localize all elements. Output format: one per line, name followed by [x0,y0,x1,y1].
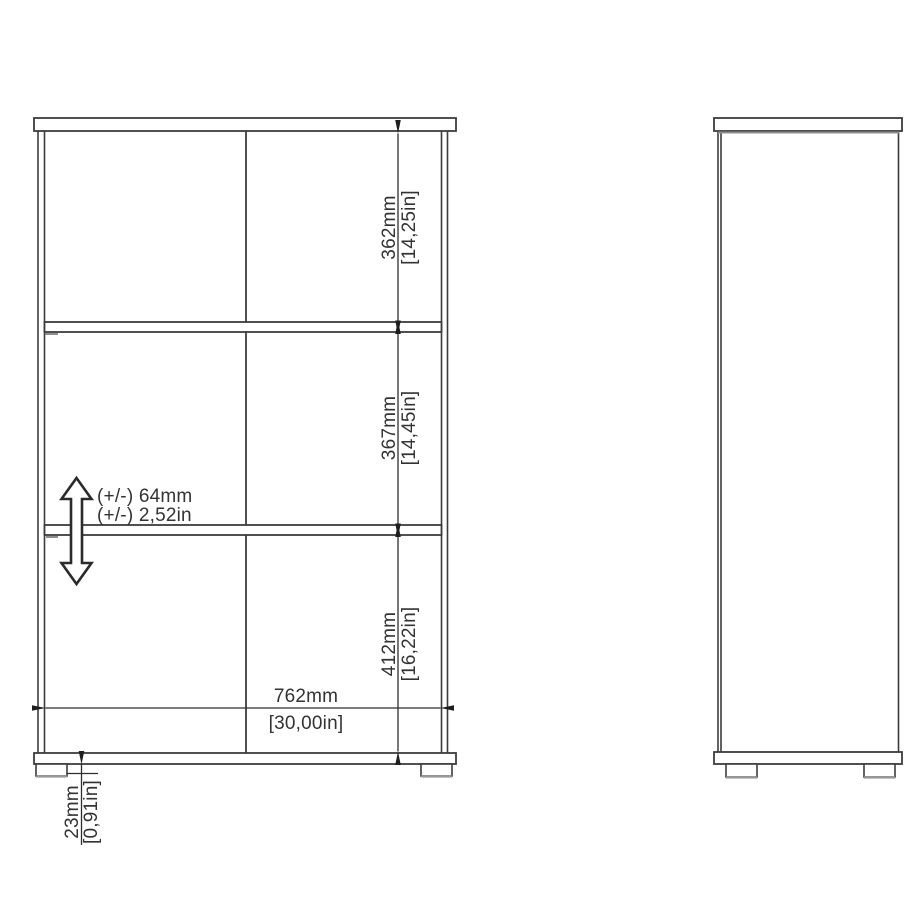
front-bottom-panel [34,753,456,764]
front-top-panel [34,118,456,131]
front-fixed-shelf [45,322,442,332]
front-adjustable-shelf [45,525,442,535]
side-bottom-panel [714,752,902,764]
front-dimensions: 362mm [14,25in] 367mm [14,45in] 412mm [1… [46,134,441,846]
dim-label-inner-width-in: [30,00in] [269,713,344,734]
bookcase-dimension-drawing: 362mm [14,25in] 367mm [14,45in] 412mm [1… [0,0,907,907]
side-front-foot [726,764,757,777]
dim-label-compartment-1-in: [14,25in] [399,190,420,265]
side-back-foot [864,764,895,777]
dim-label-compartment-2-mm: 367mm [379,396,400,460]
dim-label-compartment-1-mm: 362mm [379,195,400,259]
side-view [714,118,902,778]
front-left-foot [36,764,67,776]
shelf-adjust-label-in: (+/-) 2,52in [97,505,192,526]
front-right-foot [421,764,452,776]
dim-label-compartment-3-in: [16,22in] [399,607,420,682]
technical-drawing-page: 362mm [14,25in] 367mm [14,45in] 412mm [1… [0,0,907,907]
side-top-panel [714,118,902,131]
dim-label-compartment-3-mm: 412mm [379,612,400,676]
dim-label-foot-height-in: [0,91in] [81,780,102,844]
dim-label-inner-width-mm: 762mm [274,686,338,707]
dim-label-foot-height-mm: 23mm [62,785,83,839]
shelf-adjust-label-mm: (+/-) 64mm [97,486,192,507]
dim-label-compartment-2-in: [14,45in] [399,391,420,466]
